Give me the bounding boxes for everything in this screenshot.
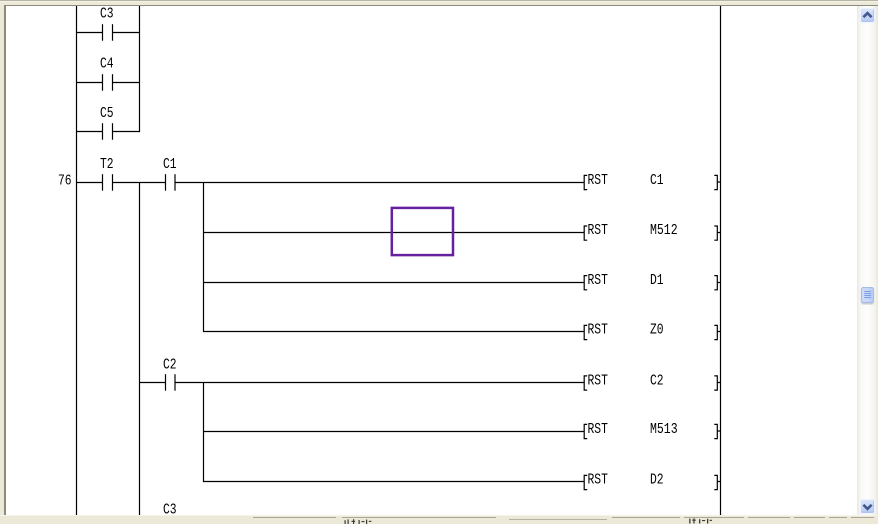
svg-text:M512: M512 — [650, 223, 678, 239]
svg-text:C1: C1 — [650, 173, 664, 189]
svg-text:C5: C5 — [100, 106, 114, 122]
svg-text:Z0: Z0 — [650, 323, 664, 339]
svg-text:RST: RST — [588, 473, 609, 489]
svg-text:RST: RST — [588, 273, 609, 289]
svg-text:76: 76 — [58, 173, 72, 189]
svg-text:RST: RST — [588, 323, 609, 339]
svg-text:RST: RST — [588, 223, 609, 239]
svg-text:C2: C2 — [163, 357, 177, 373]
svg-text:T2: T2 — [100, 157, 114, 173]
svg-text:M513: M513 — [650, 422, 678, 438]
svg-text:D1: D1 — [650, 273, 664, 289]
svg-text:RST: RST — [588, 173, 609, 189]
svg-text:C1: C1 — [163, 157, 177, 173]
svg-text:RST: RST — [588, 422, 609, 438]
svg-text:D2: D2 — [650, 473, 664, 489]
svg-text:RST: RST — [588, 373, 609, 389]
svg-text:C2: C2 — [650, 373, 664, 389]
svg-text:C4: C4 — [100, 57, 114, 73]
svg-text:C3: C3 — [100, 7, 114, 23]
